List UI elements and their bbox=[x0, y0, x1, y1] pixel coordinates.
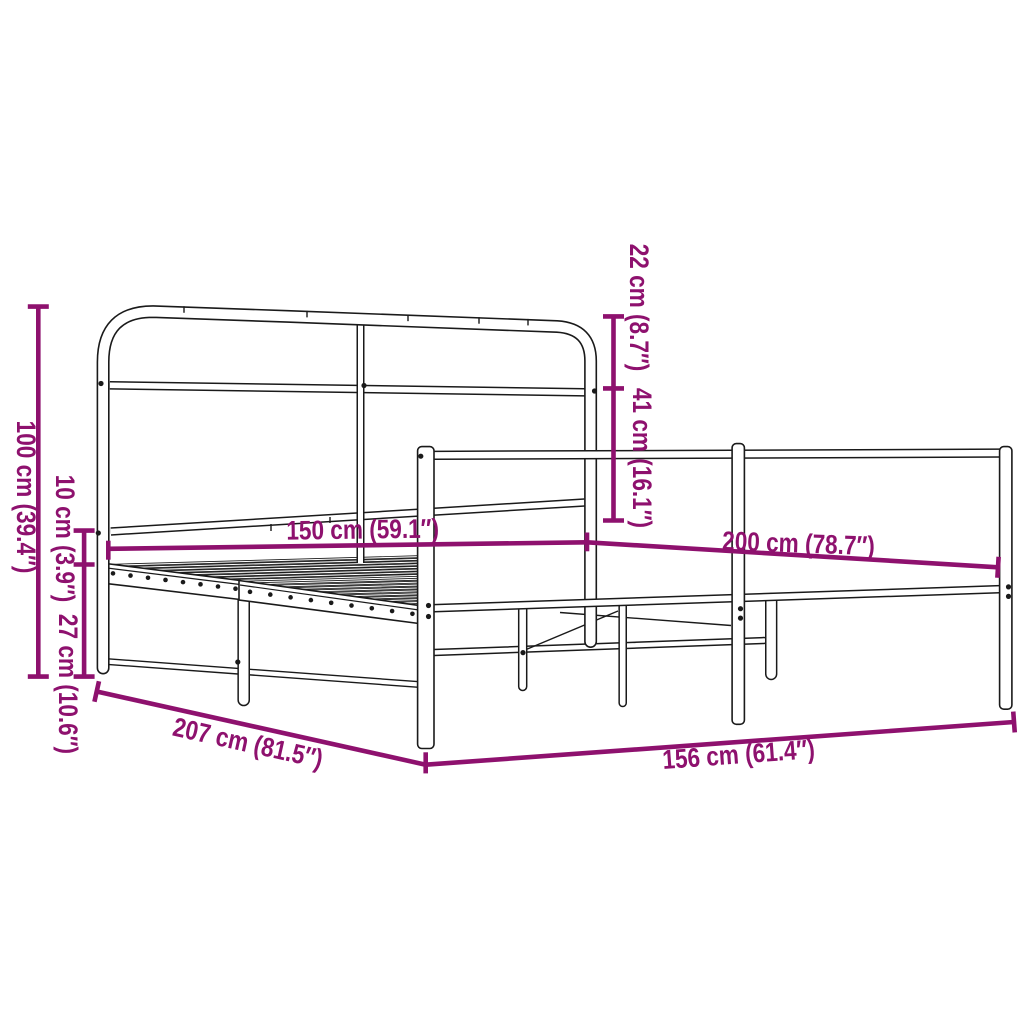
svg-text:100 cm (39.4″): 100 cm (39.4″) bbox=[11, 421, 40, 574]
svg-text:41 cm (16.1″): 41 cm (16.1″) bbox=[627, 388, 656, 528]
svg-text:200 cm (78.7″): 200 cm (78.7″) bbox=[722, 527, 876, 562]
svg-text:22 cm (8.7″): 22 cm (8.7″) bbox=[624, 244, 653, 372]
svg-text:27 cm (10.6″): 27 cm (10.6″) bbox=[53, 614, 82, 754]
svg-text:150 cm (59.1″): 150 cm (59.1″) bbox=[286, 515, 439, 546]
svg-text:10 cm (3.9″): 10 cm (3.9″) bbox=[50, 475, 79, 603]
